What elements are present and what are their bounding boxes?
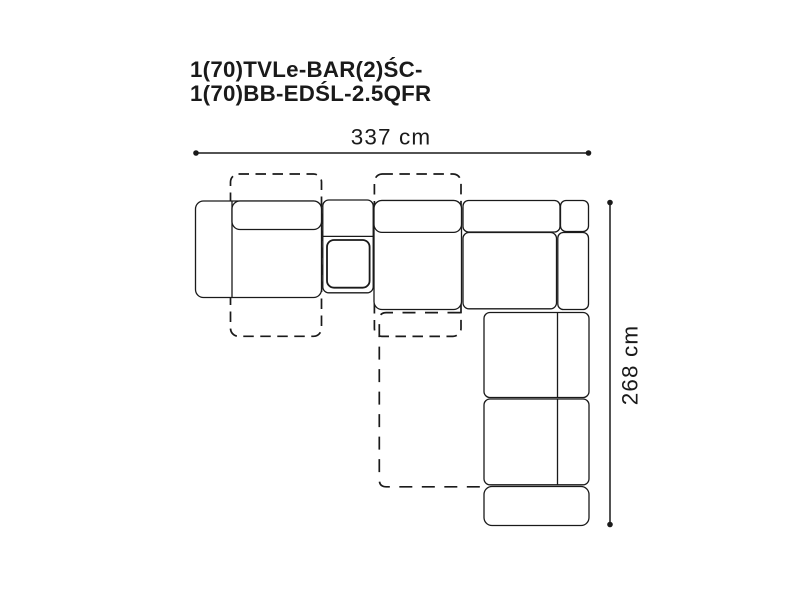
svg-text:337 cm: 337 cm <box>351 125 431 150</box>
svg-text:1(70)TVLe-BAR(2)ŚC-: 1(70)TVLe-BAR(2)ŚC- <box>190 57 423 82</box>
svg-text:268 cm: 268 cm <box>618 325 643 405</box>
svg-text:1(70)BB-EDŚL-2.5QFR: 1(70)BB-EDŚL-2.5QFR <box>190 81 431 106</box>
